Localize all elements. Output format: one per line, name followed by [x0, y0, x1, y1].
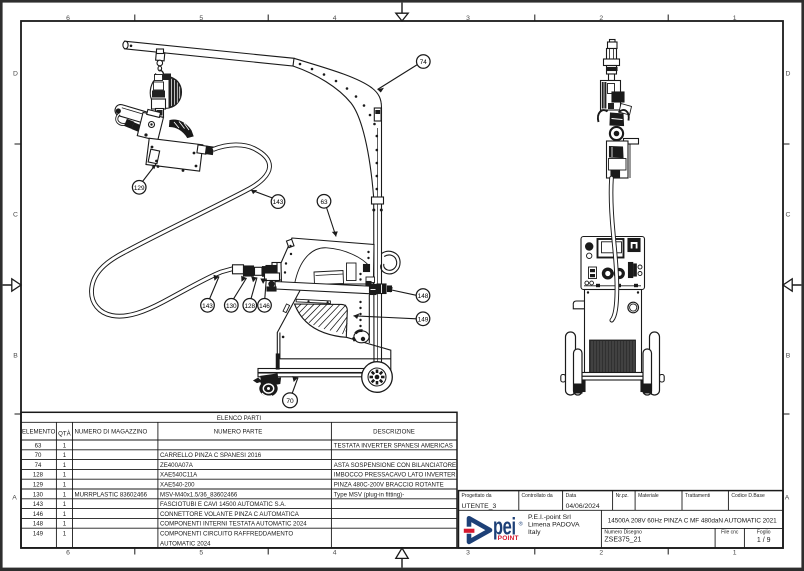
- svg-text:04/06/2024: 04/06/2024: [566, 503, 600, 510]
- svg-text:Italy: Italy: [528, 529, 541, 536]
- svg-text:129: 129: [134, 185, 145, 192]
- svg-text:128: 128: [244, 303, 255, 310]
- svg-text:POINT: POINT: [498, 535, 519, 542]
- svg-text:148: 148: [418, 293, 429, 300]
- svg-text:143: 143: [33, 501, 44, 508]
- svg-text:74: 74: [35, 462, 42, 469]
- svg-text:1: 1: [63, 452, 67, 459]
- svg-text:70: 70: [35, 452, 42, 459]
- svg-text:5: 5: [199, 550, 203, 557]
- svg-text:CONNETTORE VOLANTE PINZA C AUT: CONNETTORE VOLANTE PINZA C AUTOMATICA: [160, 511, 300, 518]
- svg-text:Type MSV (plug-in fitting)-: Type MSV (plug-in fitting)-: [334, 491, 404, 498]
- svg-text:1: 1: [63, 531, 67, 538]
- svg-text:149: 149: [33, 531, 44, 538]
- svg-text:149: 149: [418, 316, 429, 323]
- svg-text:70: 70: [286, 398, 294, 405]
- svg-text:63: 63: [35, 442, 42, 449]
- svg-text:D: D: [13, 71, 18, 78]
- svg-text:Progettato da: Progettato da: [462, 493, 492, 499]
- svg-text:129: 129: [33, 482, 44, 489]
- svg-text:MURRPLASTIC 83602466: MURRPLASTIC 83602466: [75, 491, 148, 498]
- svg-text:1: 1: [63, 472, 67, 479]
- svg-text:3: 3: [466, 550, 470, 557]
- svg-text:1: 1: [63, 521, 67, 528]
- svg-text:C: C: [786, 212, 791, 219]
- svg-text:4: 4: [333, 550, 337, 557]
- svg-text:1: 1: [63, 482, 67, 489]
- svg-text:ASTA SOSPENSIONE CON BILANCIAT: ASTA SOSPENSIONE CON BILANCIATORE: [334, 462, 456, 469]
- svg-text:A: A: [12, 495, 17, 502]
- svg-text:ELEMENTO: ELEMENTO: [22, 429, 56, 436]
- svg-text:1: 1: [63, 501, 67, 508]
- svg-text:TESTATA INVERTER SPANESI AMERI: TESTATA INVERTER SPANESI AMERICAS: [334, 442, 453, 449]
- svg-text:IMBOCCO PRESSACAVO LATO INVERT: IMBOCCO PRESSACAVO LATO INVERTER: [334, 472, 456, 479]
- svg-text:C: C: [13, 212, 18, 219]
- svg-text:130: 130: [226, 303, 237, 310]
- svg-text:Trattamenti: Trattamenti: [685, 493, 710, 499]
- svg-text:4: 4: [333, 15, 337, 22]
- svg-text:Limena PADOVA: Limena PADOVA: [528, 522, 580, 529]
- svg-text:NUMERO DI MAGAZZINO: NUMERO DI MAGAZZINO: [75, 429, 148, 436]
- svg-text:6: 6: [66, 550, 70, 557]
- svg-text:148: 148: [33, 521, 44, 528]
- svg-text:74: 74: [420, 59, 428, 66]
- svg-text:Foglio: Foglio: [757, 530, 771, 536]
- svg-text:Codice D.Base: Codice D.Base: [731, 493, 765, 499]
- svg-text:ELENCO PARTI: ELENCO PARTI: [217, 415, 261, 422]
- svg-text:MSV-M40x1.5/36_83602466: MSV-M40x1.5/36_83602466: [160, 491, 238, 498]
- svg-text:Materiale: Materiale: [638, 493, 659, 499]
- svg-text:P.E.I.-point Srl: P.E.I.-point Srl: [528, 514, 571, 521]
- svg-text:AUTOMATIC 2024: AUTOMATIC 2024: [160, 540, 211, 547]
- svg-text:130: 130: [33, 491, 44, 498]
- svg-text:DESCRIZIONE: DESCRIZIONE: [373, 429, 415, 436]
- svg-text:File cnc: File cnc: [721, 530, 739, 536]
- svg-text:6: 6: [66, 15, 70, 22]
- svg-text:146: 146: [259, 303, 270, 310]
- svg-text:COMPONENTI INTERNI TESTATA AUT: COMPONENTI INTERNI TESTATA AUTOMATIC 202…: [160, 521, 307, 528]
- svg-text:XAE540C11A: XAE540C11A: [160, 472, 198, 479]
- svg-text:A: A: [785, 495, 790, 502]
- svg-text:1: 1: [63, 442, 67, 449]
- svg-text:2: 2: [599, 15, 603, 22]
- svg-text:1: 1: [733, 550, 737, 557]
- svg-text:1: 1: [63, 491, 67, 498]
- svg-text:Controllato da: Controllato da: [522, 493, 553, 499]
- svg-text:Nr.pz.: Nr.pz.: [616, 493, 629, 499]
- svg-text:1: 1: [63, 511, 67, 518]
- svg-text:Data: Data: [566, 493, 577, 499]
- svg-text:1: 1: [733, 15, 737, 22]
- svg-text:1: 1: [63, 462, 67, 469]
- svg-text:D: D: [786, 71, 791, 78]
- svg-text:XAE540-200: XAE540-200: [160, 482, 195, 489]
- svg-text:14500A 208V 60Hz PINZA C MF 48: 14500A 208V 60Hz PINZA C MF 480daN AUTOM…: [608, 517, 777, 524]
- svg-text:143: 143: [273, 199, 284, 206]
- svg-text:UTENTE_3: UTENTE_3: [462, 503, 497, 510]
- svg-text:FASCIOTUBI E CAVI 14500 AUTOMA: FASCIOTUBI E CAVI 14500 AUTOMATIC S.A.: [160, 501, 286, 508]
- svg-text:CARRELLO PINZA C SPANESI 2016: CARRELLO PINZA C SPANESI 2016: [160, 452, 262, 459]
- svg-text:ZSE375_21: ZSE375_21: [604, 536, 641, 543]
- svg-text:PINZA 480C-200V BRACCIO ROTANT: PINZA 480C-200V BRACCIO ROTANTE: [334, 482, 444, 489]
- svg-text:COMPONENTI CIRCUITO RAFFREDDAM: COMPONENTI CIRCUITO RAFFREDDAMENTO: [160, 531, 293, 538]
- svg-text:63: 63: [320, 199, 328, 206]
- svg-text:2: 2: [599, 550, 603, 557]
- svg-text:3: 3: [466, 15, 470, 22]
- svg-text:B: B: [13, 353, 18, 360]
- svg-text:146: 146: [33, 511, 44, 518]
- svg-text:143: 143: [202, 303, 213, 310]
- svg-text:ZE400A07A: ZE400A07A: [160, 462, 194, 469]
- svg-text:QTÀ: QTÀ: [58, 431, 71, 438]
- svg-text:NUMERO PARTE: NUMERO PARTE: [214, 429, 263, 436]
- svg-text:Numero Disegno: Numero Disegno: [604, 530, 642, 536]
- svg-text:B: B: [786, 353, 791, 360]
- svg-text:5: 5: [199, 15, 203, 22]
- svg-text:1 / 9: 1 / 9: [757, 537, 771, 544]
- svg-text:128: 128: [33, 472, 44, 479]
